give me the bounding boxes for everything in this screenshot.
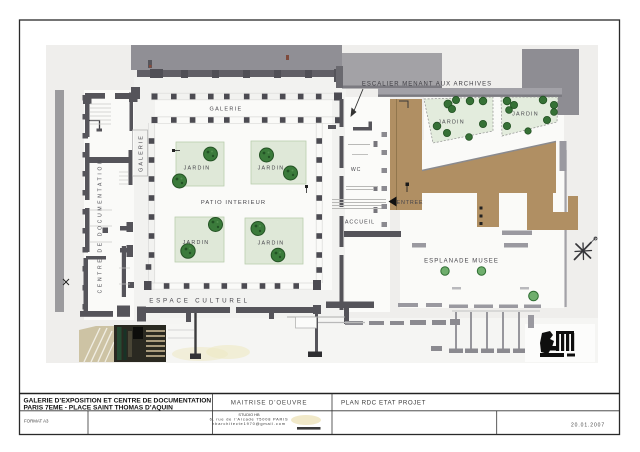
svg-text:ENTREE: ENTREE: [397, 200, 424, 206]
svg-text:GALERIE: GALERIE: [210, 106, 243, 112]
svg-text:ESPLANADE MUSEE: ESPLANADE MUSEE: [424, 259, 499, 265]
svg-text:20.01.2007: 20.01.2007: [571, 423, 605, 429]
svg-text:hbarchitecte1970@gmail.com: hbarchitecte1970@gmail.com: [212, 421, 286, 426]
svg-text:JARDIN: JARDIN: [512, 112, 539, 118]
svg-text:JARDIN: JARDIN: [183, 240, 210, 246]
svg-text:GALERIE: GALERIE: [139, 134, 145, 172]
svg-text:PATIO INTERIEUR: PATIO INTERIEUR: [201, 200, 266, 206]
svg-text:ACCUEIL: ACCUEIL: [345, 219, 375, 225]
svg-text:CENTRE DE DOCUMENTATION: CENTRE DE DOCUMENTATION: [98, 158, 104, 294]
svg-text:MAITRISE D’OEUVRE: MAITRISE D’OEUVRE: [231, 400, 308, 407]
svg-text:WC: WC: [351, 167, 361, 173]
svg-text:JARDIN: JARDIN: [184, 165, 211, 171]
svg-text:JARDIN: JARDIN: [258, 241, 285, 247]
svg-text:FORMAT A3: FORMAT A3: [24, 419, 49, 424]
svg-text:PARIS 7EME - PLACE SAINT THOMA: PARIS 7EME - PLACE SAINT THOMAS D’AQUIN: [24, 405, 174, 412]
svg-text:ESCALIER MENANT AUX ARCHIVES: ESCALIER MENANT AUX ARCHIVES: [362, 82, 492, 88]
svg-text:JARDIN: JARDIN: [258, 165, 285, 171]
svg-text:ESPACE CULTUREL: ESPACE CULTUREL: [149, 297, 250, 304]
svg-text:JARDIN: JARDIN: [438, 120, 465, 126]
svg-text:PLAN RDC ETAT PROJET: PLAN RDC ETAT PROJET: [341, 400, 426, 407]
svg-text:GALERIE D’EXPOSITION ET CENTR: GALERIE D’EXPOSITION ET CENTRE DE DOCUME…: [24, 398, 212, 405]
